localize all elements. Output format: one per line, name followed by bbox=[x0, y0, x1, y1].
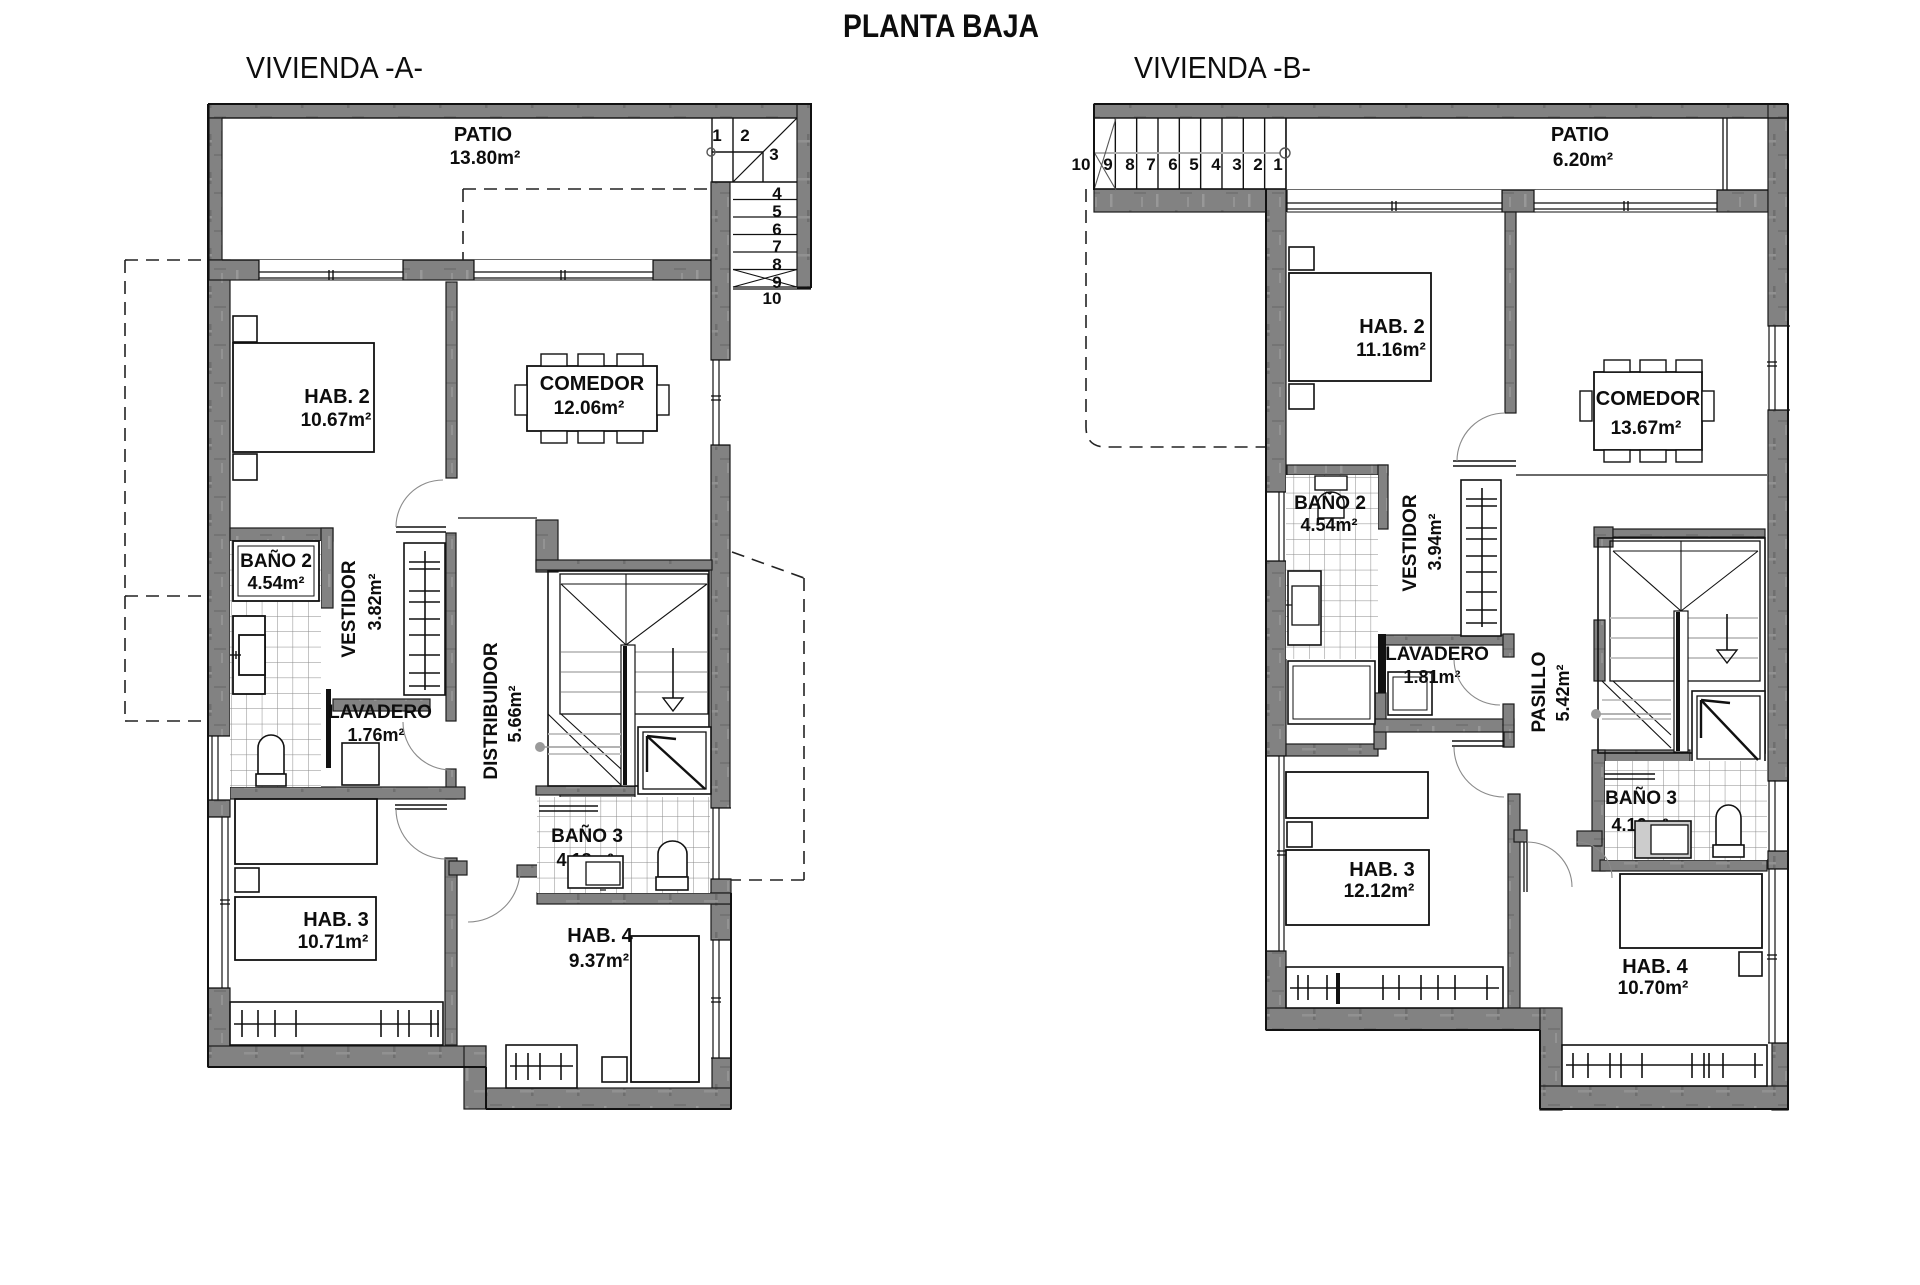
svg-text:7: 7 bbox=[772, 237, 781, 256]
svg-text:12.06m²: 12.06m² bbox=[554, 398, 625, 419]
svg-text:9: 9 bbox=[1103, 155, 1112, 174]
svg-text:8: 8 bbox=[1125, 155, 1134, 174]
svg-text:PATIO: PATIO bbox=[1551, 124, 1609, 146]
svg-text:2: 2 bbox=[1253, 155, 1262, 174]
svg-text:9.37m²: 9.37m² bbox=[569, 951, 629, 972]
svg-text:4: 4 bbox=[772, 184, 782, 203]
svg-text:1.76m²: 1.76m² bbox=[347, 725, 404, 745]
svg-text:BAÑO 3: BAÑO 3 bbox=[551, 825, 623, 847]
svg-text:HAB. 2: HAB. 2 bbox=[304, 386, 370, 408]
svg-text:BAÑO 3: BAÑO 3 bbox=[1605, 787, 1677, 809]
svg-text:13.80m²: 13.80m² bbox=[450, 148, 521, 169]
svg-text:5.42m²: 5.42m² bbox=[1553, 664, 1573, 721]
svg-text:BAÑO 2: BAÑO 2 bbox=[1294, 492, 1366, 514]
svg-text:VIVIENDA -A-: VIVIENDA -A- bbox=[246, 50, 423, 85]
svg-text:HAB. 4: HAB. 4 bbox=[1622, 956, 1688, 978]
svg-text:1: 1 bbox=[712, 126, 721, 145]
svg-text:5.66m²: 5.66m² bbox=[505, 685, 525, 742]
svg-text:10: 10 bbox=[1072, 155, 1091, 174]
svg-text:LAVADERO: LAVADERO bbox=[1385, 644, 1489, 665]
svg-text:1: 1 bbox=[1273, 155, 1282, 174]
svg-text:5: 5 bbox=[1189, 155, 1198, 174]
svg-text:3.82m²: 3.82m² bbox=[365, 573, 385, 630]
svg-text:PLANTA BAJA: PLANTA BAJA bbox=[843, 8, 1039, 44]
svg-text:VESTIDOR: VESTIDOR bbox=[1400, 494, 1421, 591]
svg-text:DISTRIBUIDOR: DISTRIBUIDOR bbox=[481, 642, 502, 780]
svg-text:4.54m²: 4.54m² bbox=[1300, 515, 1357, 535]
svg-text:5: 5 bbox=[772, 202, 781, 221]
svg-text:13.67m²: 13.67m² bbox=[1611, 418, 1682, 439]
svg-text:3: 3 bbox=[1232, 155, 1241, 174]
svg-text:COMEDOR: COMEDOR bbox=[1596, 388, 1701, 410]
svg-text:HAB. 3: HAB. 3 bbox=[303, 909, 369, 931]
svg-text:VESTIDOR: VESTIDOR bbox=[339, 560, 360, 657]
svg-text:10.67m²: 10.67m² bbox=[301, 410, 372, 431]
svg-text:10: 10 bbox=[763, 289, 782, 308]
svg-text:11.16m²: 11.16m² bbox=[1356, 340, 1426, 361]
svg-text:6: 6 bbox=[1168, 155, 1177, 174]
svg-text:PATIO: PATIO bbox=[454, 124, 512, 146]
svg-text:PASILLO: PASILLO bbox=[1529, 652, 1550, 733]
svg-text:HAB. 4: HAB. 4 bbox=[567, 925, 633, 947]
svg-text:4: 4 bbox=[1211, 155, 1221, 174]
svg-text:8: 8 bbox=[772, 255, 781, 274]
svg-text:12.12m²: 12.12m² bbox=[1344, 881, 1415, 902]
svg-text:10.70m²: 10.70m² bbox=[1618, 978, 1689, 999]
svg-text:VIVIENDA -B-: VIVIENDA -B- bbox=[1134, 50, 1311, 85]
svg-text:10.71m²: 10.71m² bbox=[298, 932, 369, 953]
svg-text:HAB. 2: HAB. 2 bbox=[1359, 316, 1425, 338]
svg-text:3.94m²: 3.94m² bbox=[1425, 513, 1445, 570]
svg-text:6.20m²: 6.20m² bbox=[1553, 150, 1613, 171]
svg-text:3: 3 bbox=[769, 145, 778, 164]
svg-text:BAÑO 2: BAÑO 2 bbox=[240, 550, 312, 572]
svg-text:HAB. 3: HAB. 3 bbox=[1349, 859, 1415, 881]
svg-text:4.54m²: 4.54m² bbox=[247, 573, 304, 593]
svg-text:1.81m²: 1.81m² bbox=[1403, 667, 1460, 687]
svg-text:LAVADERO: LAVADERO bbox=[328, 702, 432, 723]
svg-text:7: 7 bbox=[1146, 155, 1155, 174]
svg-text:COMEDOR: COMEDOR bbox=[540, 373, 645, 395]
svg-text:2: 2 bbox=[740, 126, 749, 145]
